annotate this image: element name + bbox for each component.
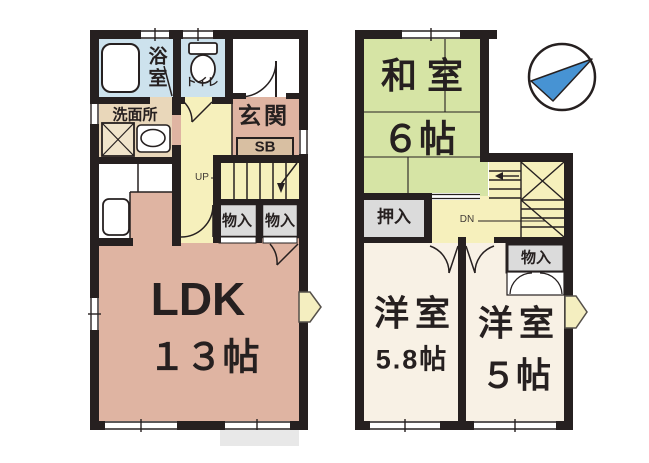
- stairs-up-label: UP: [195, 173, 209, 183]
- japanese-room-label: 和室: [381, 58, 473, 94]
- bath-label: 浴室: [147, 46, 166, 90]
- washroom-label: 洗面所: [112, 108, 157, 123]
- entry-arrow-icon: [299, 292, 321, 322]
- washbasin-icon: [137, 125, 170, 152]
- western-b-label: 洋室: [478, 307, 560, 342]
- entry-arrow-icon: [565, 296, 587, 328]
- floor-plan: 浴室 トイレ 洗面所 玄関 SB UP 物入 物入 LDK １３帖 和室 ６帖 …: [0, 0, 649, 463]
- storage-b-label: 物入: [265, 214, 295, 229]
- washing-machine-icon: [102, 123, 134, 156]
- window: [299, 130, 308, 154]
- western-b-size-label: ５帖: [481, 359, 551, 394]
- floor-plan-svg: [0, 0, 649, 463]
- entrance-label: 玄関: [238, 105, 290, 128]
- japanese-size-label: ６帖: [382, 121, 456, 158]
- western-a-label: 洋室: [374, 297, 456, 332]
- porch: [220, 430, 299, 446]
- western-a-size-label: 5.8帖: [376, 347, 449, 374]
- ldk-size-label: １３帖: [149, 339, 260, 376]
- stairs-down-label: DN: [460, 215, 474, 225]
- ldk-label: LDK: [151, 276, 246, 322]
- storage-a-label: 物入: [222, 214, 252, 229]
- window: [90, 104, 99, 124]
- storage-2f-label: 物入: [521, 251, 551, 266]
- bathtub-icon: [102, 44, 139, 92]
- oshiire-label: 押入: [377, 209, 411, 226]
- entry-porch: [233, 39, 299, 97]
- shoe-box-label: SB: [255, 140, 276, 155]
- toilet-label: トイレ: [186, 78, 219, 89]
- first-floor: [88, 28, 321, 446]
- kitchen-sink-icon: [103, 199, 129, 235]
- sliding-door: [432, 193, 480, 200]
- compass-icon: [529, 44, 595, 110]
